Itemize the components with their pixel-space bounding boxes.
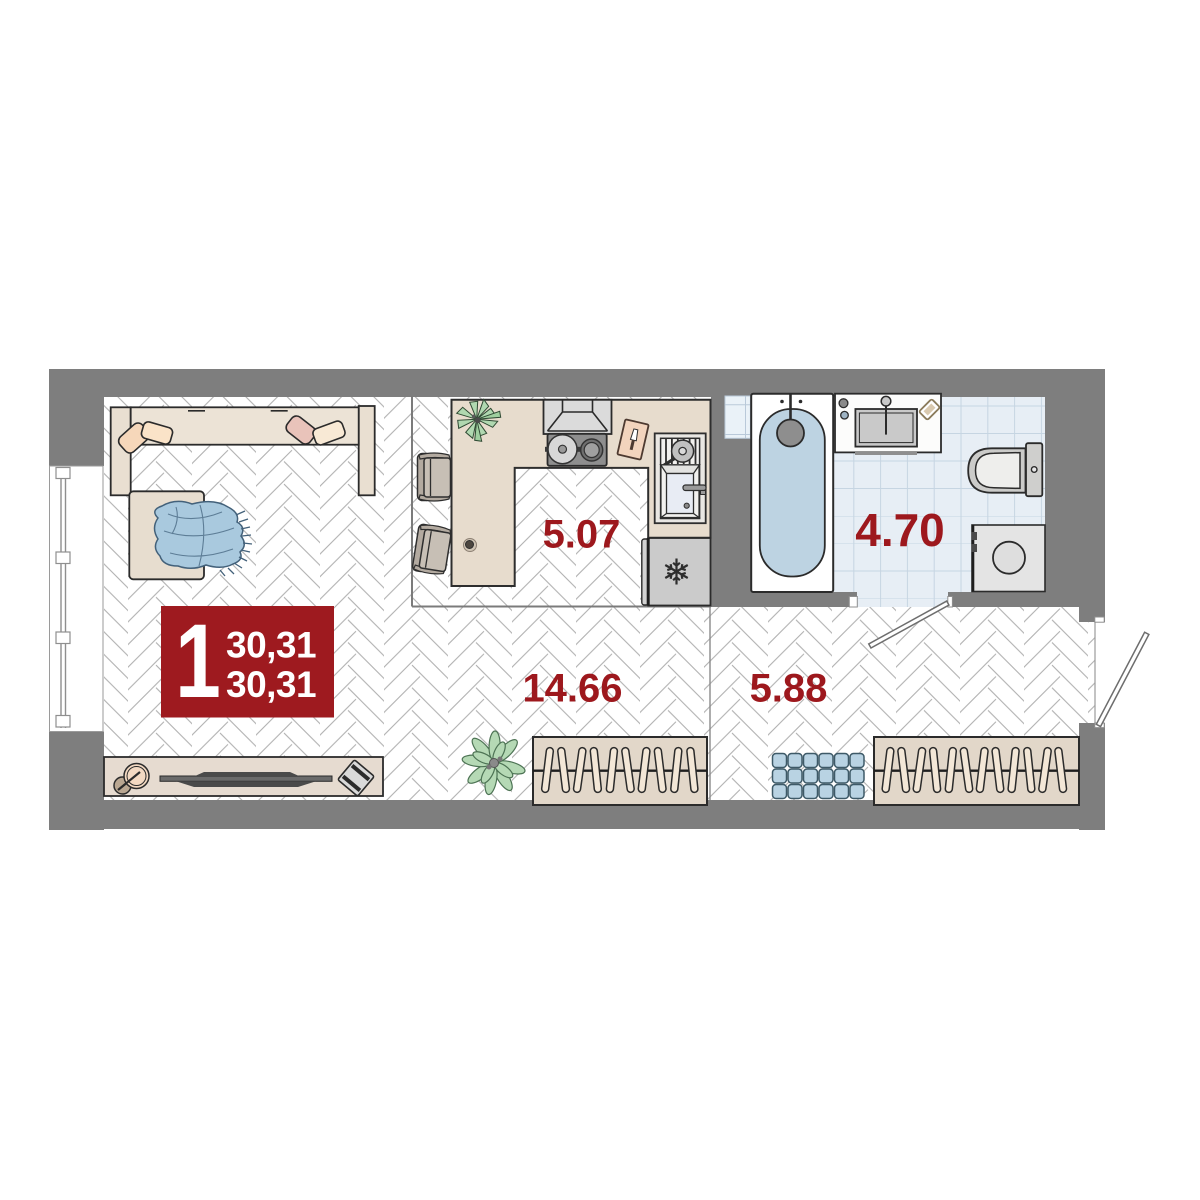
svg-text:1: 1 <box>175 602 221 719</box>
svg-text:4.70: 4.70 <box>855 504 945 556</box>
svg-text:30,31: 30,31 <box>226 625 316 666</box>
svg-text:30,31: 30,31 <box>226 664 316 705</box>
svg-text:5.88: 5.88 <box>750 667 828 711</box>
svg-text:14.66: 14.66 <box>522 667 622 711</box>
svg-text:5.07: 5.07 <box>543 513 621 557</box>
